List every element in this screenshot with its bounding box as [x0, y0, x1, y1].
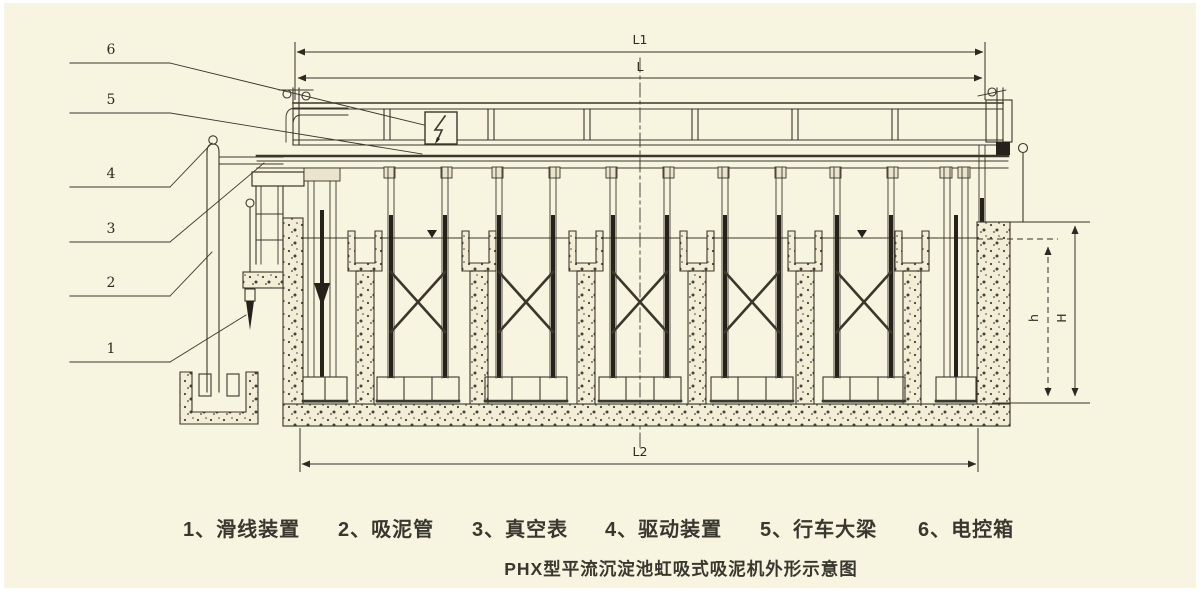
callout-number: 5 — [107, 92, 116, 108]
diagram-title: PHX型平流沉淀池虹吸式吸泥机外形示意图 — [504, 559, 857, 579]
legend-item: 4、驱动装置 — [605, 517, 722, 541]
paper-background — [4, 3, 1196, 588]
dim-label-l2: L2 — [633, 444, 648, 459]
callout-number: 4 — [107, 166, 116, 182]
dim-label-l1: L1 — [633, 32, 648, 47]
legend-item: 1、滑线装置 — [183, 517, 300, 541]
legend-item: 2、吸泥管 — [338, 517, 434, 541]
tank-wall-right — [977, 222, 1010, 426]
legend-item: 5、行车大梁 — [760, 517, 877, 541]
diagram-canvas: L1 L — [0, 0, 1200, 591]
legend-item: 6、电控箱 — [918, 517, 1014, 541]
callout-number: 2 — [107, 275, 116, 291]
dim-label-h: h — [1026, 314, 1041, 322]
electric-control-box — [425, 112, 457, 144]
tank-wall-left — [283, 218, 303, 426]
dim-label-H: H — [1054, 313, 1069, 322]
callout-number: 1 — [107, 341, 116, 357]
legend-item: 3、真空表 — [472, 517, 568, 541]
tank-floor — [283, 404, 1010, 426]
callout-number: 3 — [107, 221, 116, 237]
callout-number: 6 — [107, 42, 116, 58]
diagram-page: L1 L — [0, 0, 1200, 591]
